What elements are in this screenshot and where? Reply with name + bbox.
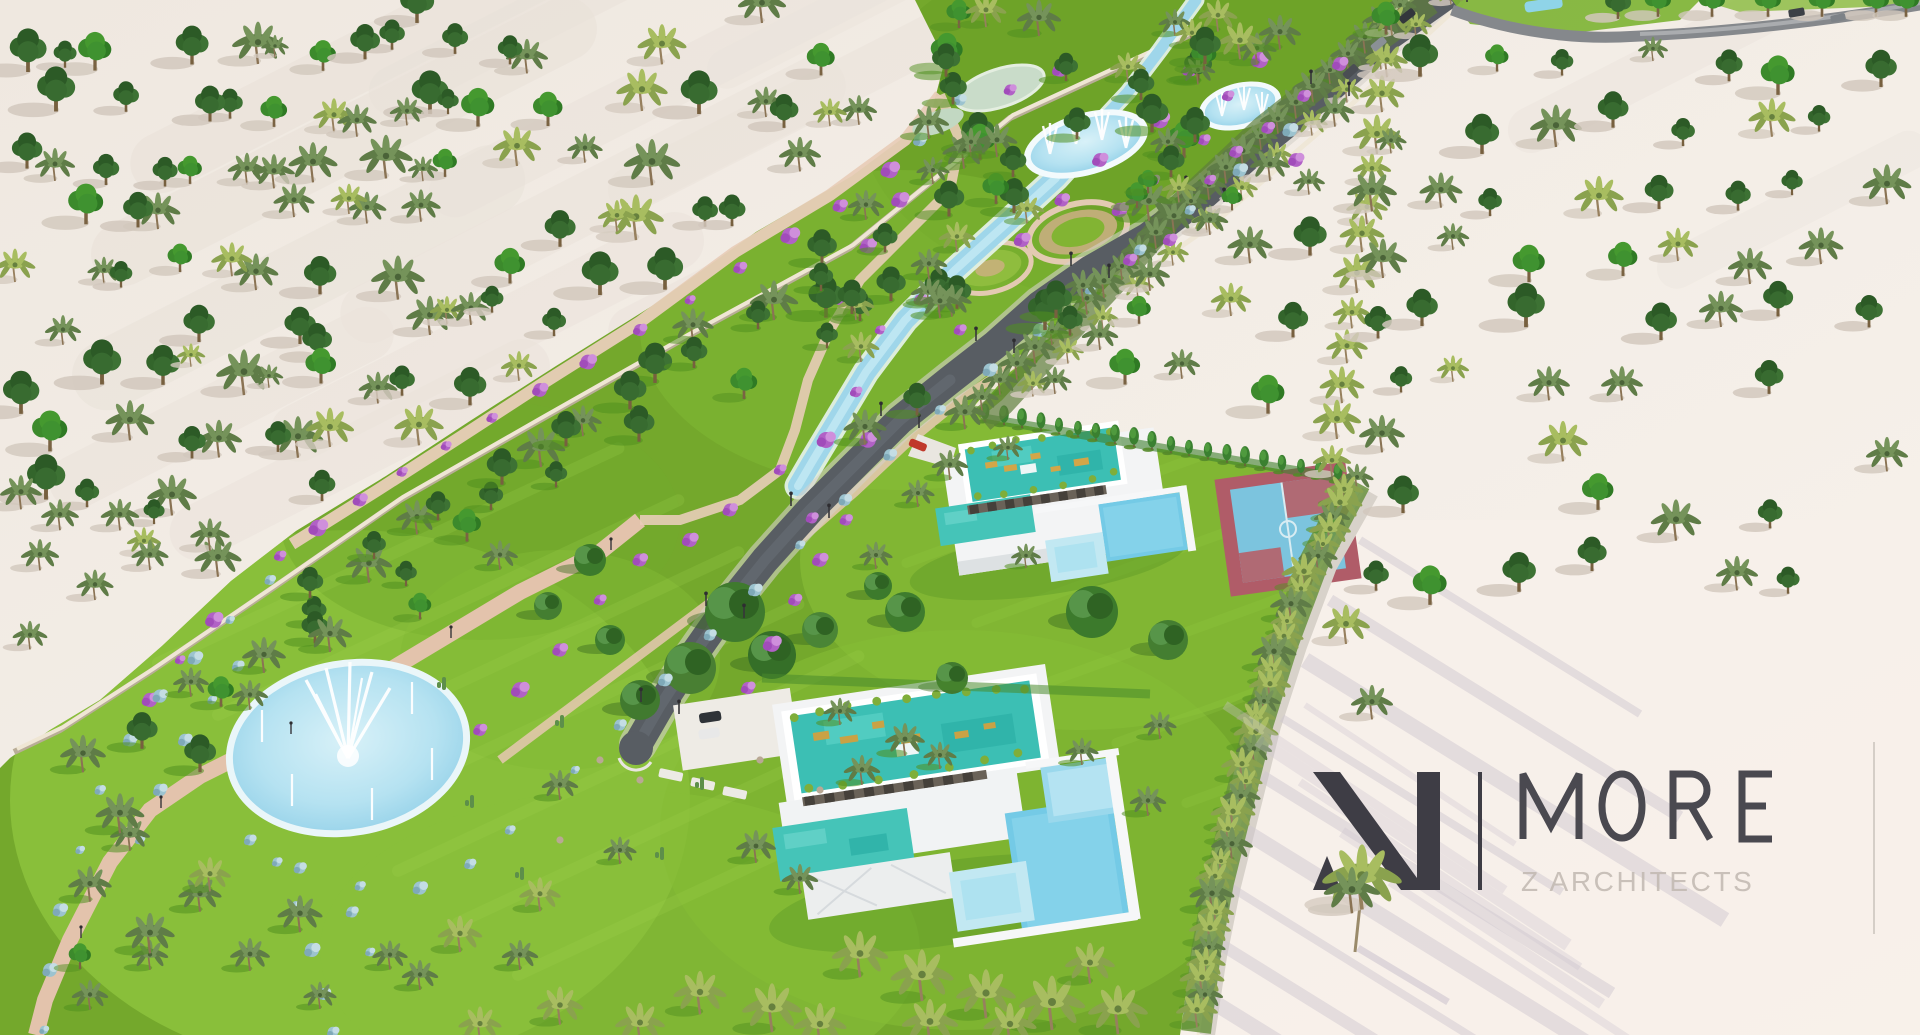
svg-text:Z ARCHITECTS: Z ARCHITECTS [1521, 866, 1754, 897]
